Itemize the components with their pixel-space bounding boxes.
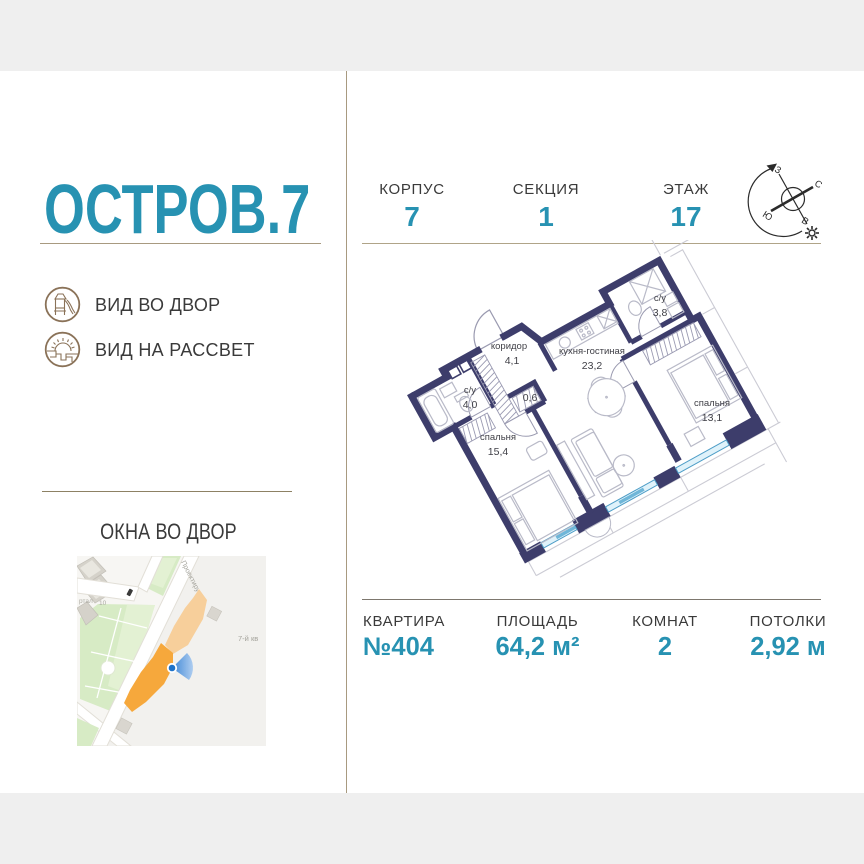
svg-text:коридор: коридор [491,341,527,352]
svg-text:0,6: 0,6 [523,392,538,404]
svg-text:кухня-гостиная: кухня-гостиная [559,346,625,357]
svg-text:4,1: 4,1 [505,355,520,367]
svg-text:спальня: спальня [694,398,730,409]
svg-text:23,2: 23,2 [582,360,603,372]
svg-text:10: 10 [99,600,107,607]
svg-text:4,0: 4,0 [463,399,478,411]
svg-text:ртал: ртал [79,598,93,605]
svg-text:с/у: с/у [654,293,666,304]
svg-text:спальня: спальня [480,432,516,443]
svg-text:В: В [799,215,810,228]
svg-text:15,4: 15,4 [488,446,509,458]
svg-text:с/у: с/у [464,385,476,396]
svg-text:С: С [812,178,824,191]
svg-text:13,1: 13,1 [702,412,723,424]
svg-text:3,8: 3,8 [653,307,668,319]
svg-text:7-й кв: 7-й кв [238,634,258,643]
